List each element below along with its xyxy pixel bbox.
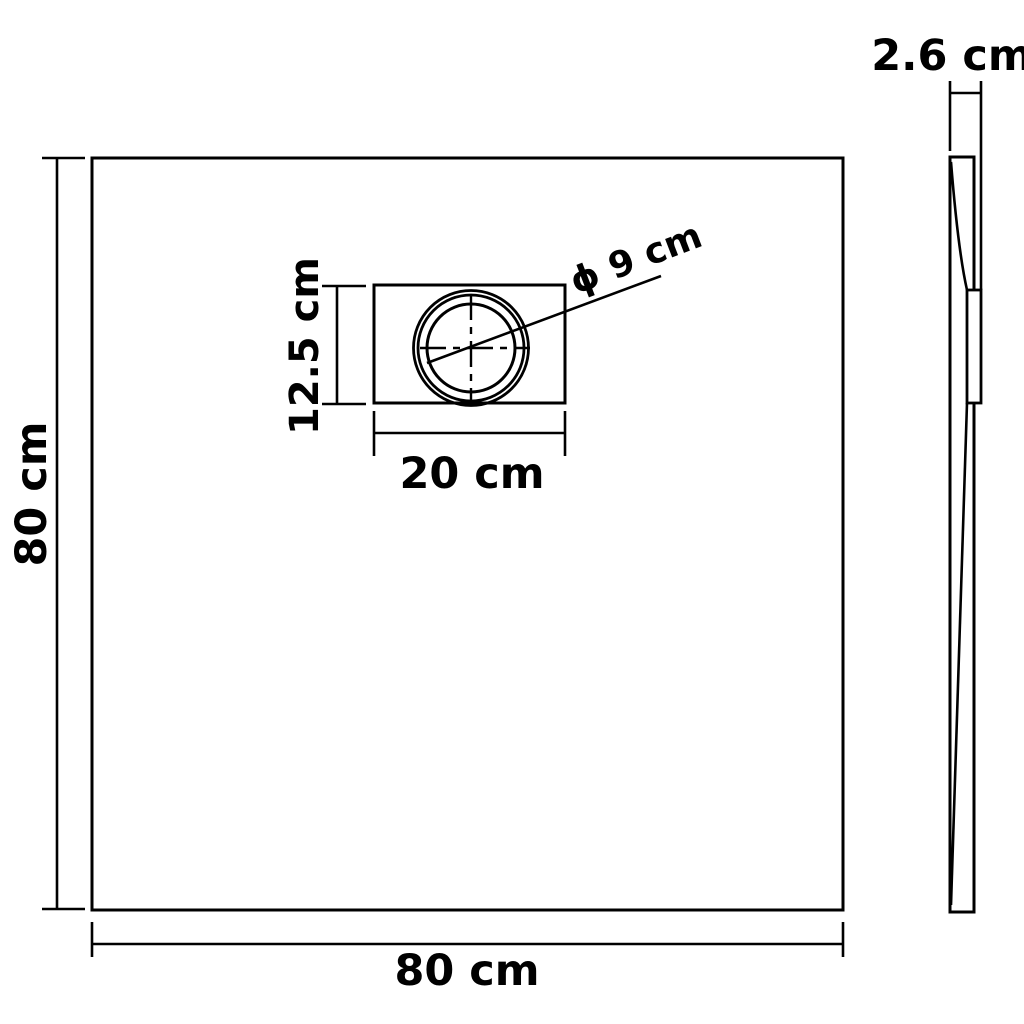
drain-box-height-label: 12.5 cm <box>282 257 328 435</box>
drawing-canvas: 80 cm 80 cm 12.5 cm 20 cm ϕ 9 cm 2.6 cm <box>0 0 1024 1024</box>
shower-tray-dimension-drawing: 80 cm 80 cm 12.5 cm 20 cm ϕ 9 cm 2.6 cm <box>0 0 1024 1024</box>
plan-height-label: 80 cm <box>7 421 57 566</box>
drain-box-width-label: 20 cm <box>399 449 544 499</box>
profile-drain-bump <box>967 290 981 403</box>
plan-width-label: 80 cm <box>394 946 539 996</box>
tray-plan-outline <box>92 158 843 910</box>
thickness-label: 2.6 cm <box>871 31 1024 81</box>
